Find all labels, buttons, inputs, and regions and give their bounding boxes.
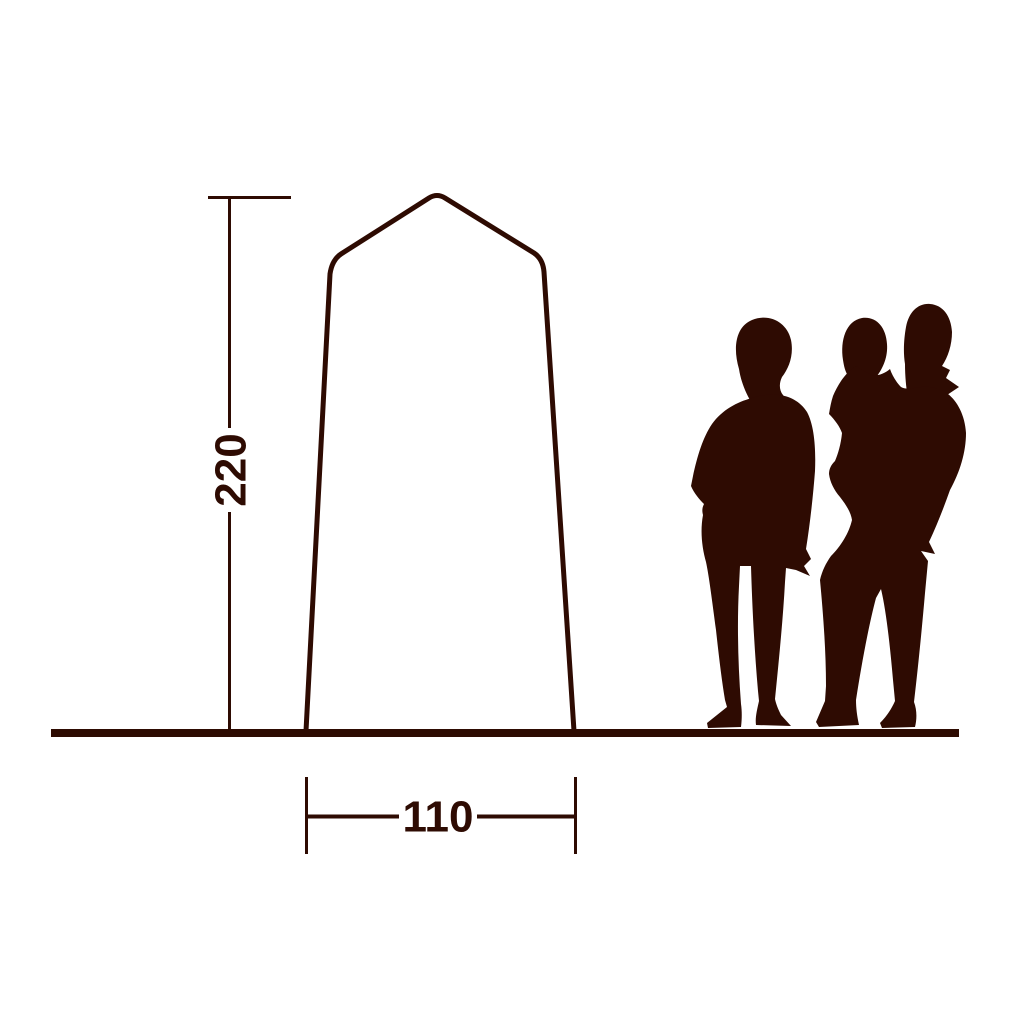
diagram-canvas: 220 110 bbox=[0, 0, 1024, 1024]
width-dimension-label: 110 bbox=[403, 793, 474, 842]
family-silhouette bbox=[691, 304, 966, 728]
adult-with-child-body bbox=[816, 366, 966, 728]
width-dimension: 110 bbox=[306, 777, 576, 854]
woman-body bbox=[691, 395, 815, 728]
adult-with-child-silhouette bbox=[816, 304, 966, 728]
tent-outline bbox=[306, 196, 574, 732]
dimension-diagram: 220 110 bbox=[0, 0, 1024, 1024]
woman-silhouette bbox=[691, 318, 815, 728]
height-dimension: 220 bbox=[207, 197, 292, 731]
woman-head bbox=[736, 318, 796, 405]
child-head bbox=[842, 318, 887, 379]
height-dimension-label: 220 bbox=[207, 433, 256, 506]
